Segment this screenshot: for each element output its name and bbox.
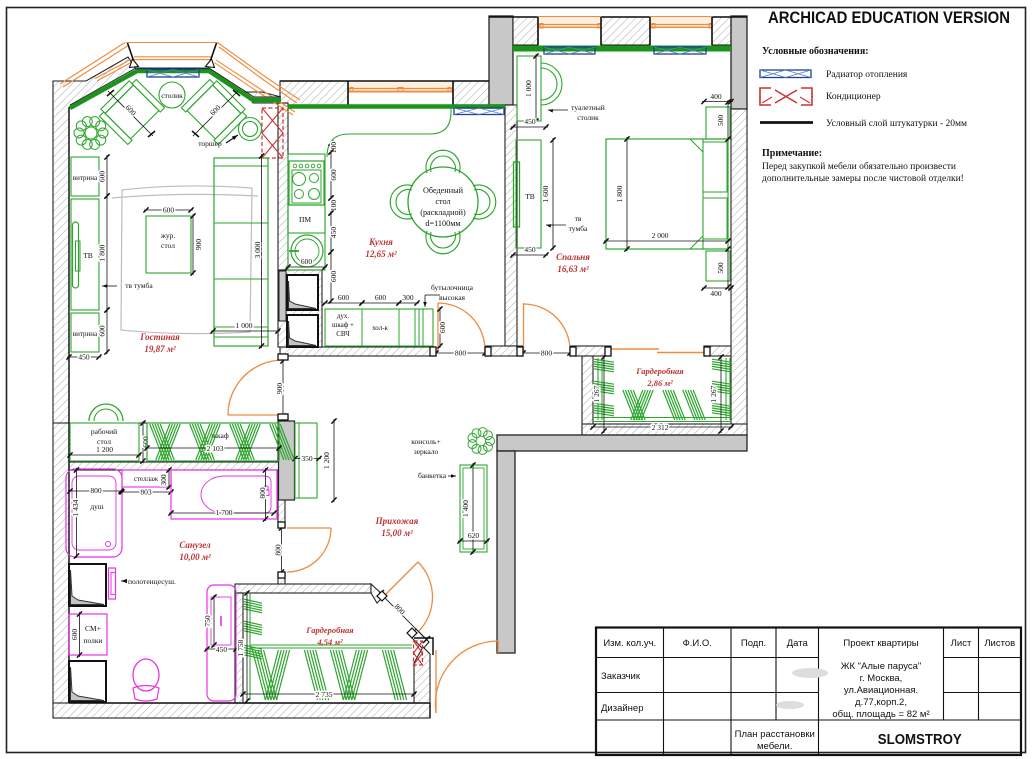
svg-text:450: 450 bbox=[78, 353, 90, 362]
svg-text:Дизайнер: Дизайнер bbox=[601, 703, 644, 714]
svg-text:Ф.И.О.: Ф.И.О. bbox=[683, 638, 712, 649]
svg-text:г. Москва,: г. Москва, bbox=[860, 673, 903, 684]
svg-text:общ. площадь = 82 м²: общ. площадь = 82 м² bbox=[832, 709, 929, 720]
svg-text:душ: душ bbox=[90, 502, 104, 511]
svg-text:(раскладной): (раскладной) bbox=[420, 208, 466, 217]
svg-text:100: 100 bbox=[329, 142, 338, 154]
svg-text:600: 600 bbox=[301, 257, 313, 266]
svg-text:16,63 м²: 16,63 м² bbox=[557, 264, 589, 274]
svg-text:хол-к: хол-к bbox=[372, 324, 388, 332]
svg-text:ПМ: ПМ bbox=[299, 215, 311, 224]
svg-text:900: 900 bbox=[194, 239, 203, 251]
svg-text:стеллаж: стеллаж bbox=[134, 475, 158, 483]
svg-text:Подп.: Подп. bbox=[741, 638, 766, 649]
svg-text:витрина: витрина bbox=[73, 330, 98, 338]
svg-text:Лист: Лист bbox=[951, 638, 972, 649]
svg-text:шкаф +: шкаф + bbox=[332, 321, 354, 329]
svg-text:ул.Авиационная.: ул.Авиационная. bbox=[844, 685, 918, 696]
svg-text:д.77,корп.2,: д.77,корп.2, bbox=[855, 697, 907, 708]
svg-text:620: 620 bbox=[468, 531, 480, 540]
svg-text:15,00 м²: 15,00 м² bbox=[381, 528, 413, 538]
svg-text:мебели.: мебели. bbox=[757, 741, 793, 752]
svg-text:Гардеробная: Гардеробная bbox=[635, 366, 684, 376]
svg-text:400: 400 bbox=[710, 289, 722, 298]
svg-text:750: 750 bbox=[203, 615, 212, 627]
svg-text:803: 803 bbox=[140, 488, 152, 497]
svg-text:400: 400 bbox=[710, 92, 722, 101]
svg-text:1 267: 1 267 bbox=[592, 385, 601, 402]
svg-text:Кухня: Кухня bbox=[368, 237, 393, 247]
svg-text:Радиатор отопления: Радиатор отопления bbox=[826, 70, 908, 80]
svg-text:Обеденный: Обеденный bbox=[423, 186, 464, 195]
svg-text:План расстановки: План расстановки bbox=[735, 729, 815, 740]
svg-text:Дата: Дата bbox=[787, 638, 809, 649]
svg-text:бутылочница: бутылочница bbox=[431, 283, 474, 292]
svg-text:тумба: тумба bbox=[569, 224, 588, 233]
svg-text:Проект квартиры: Проект квартиры bbox=[843, 638, 918, 649]
svg-text:СМ+: СМ+ bbox=[85, 624, 101, 633]
svg-text:600: 600 bbox=[438, 322, 447, 334]
svg-text:600: 600 bbox=[329, 271, 338, 283]
svg-text:d=1100мм: d=1100мм bbox=[425, 219, 460, 228]
svg-text:300: 300 bbox=[159, 474, 168, 486]
svg-text:1 758: 1 758 bbox=[236, 639, 245, 656]
svg-text:торшер: торшер bbox=[198, 139, 222, 148]
svg-text:800: 800 bbox=[258, 487, 267, 499]
svg-text:800: 800 bbox=[455, 349, 467, 358]
svg-text:Перед закупкой мебели обязател: Перед закупкой мебели обязательно произв… bbox=[762, 161, 956, 172]
svg-text:900: 900 bbox=[275, 383, 284, 395]
svg-text:600: 600 bbox=[97, 171, 106, 183]
svg-text:высокая: высокая bbox=[439, 293, 466, 302]
svg-text:4,54 м²: 4,54 м² bbox=[316, 637, 343, 647]
svg-text:SLOMSTROY: SLOMSTROY bbox=[878, 732, 962, 748]
svg-text:Условные обозначения:: Условные обозначения: bbox=[762, 46, 869, 57]
svg-text:450: 450 bbox=[524, 117, 536, 126]
svg-text:Кондиционер: Кондиционер bbox=[826, 92, 881, 102]
svg-text:стол: стол bbox=[161, 241, 175, 250]
svg-text:450: 450 bbox=[524, 245, 536, 254]
svg-text:Изм. кол.уч.: Изм. кол.уч. bbox=[603, 638, 656, 649]
svg-text:2 735: 2 735 bbox=[316, 690, 333, 699]
svg-text:1 700: 1 700 bbox=[216, 508, 233, 517]
svg-text:600: 600 bbox=[375, 293, 387, 302]
svg-text:2 312: 2 312 bbox=[652, 423, 669, 432]
svg-text:Спальня: Спальня bbox=[556, 252, 590, 262]
svg-text:500: 500 bbox=[716, 115, 725, 127]
svg-text:800: 800 bbox=[541, 349, 553, 358]
svg-text:Прихожая: Прихожая bbox=[375, 516, 419, 526]
svg-text:1 400: 1 400 bbox=[461, 500, 470, 517]
svg-text:1 200: 1 200 bbox=[96, 445, 113, 454]
svg-text:600: 600 bbox=[163, 206, 175, 215]
svg-text:100: 100 bbox=[329, 200, 338, 212]
svg-text:консоль+: консоль+ bbox=[411, 437, 440, 446]
svg-text:1 800: 1 800 bbox=[615, 185, 624, 202]
svg-text:1 000: 1 000 bbox=[524, 80, 533, 97]
svg-text:1 267: 1 267 bbox=[709, 385, 718, 402]
svg-text:10,00 м²: 10,00 м² bbox=[179, 552, 211, 562]
svg-text:столик: столик bbox=[161, 91, 183, 100]
svg-text:500: 500 bbox=[716, 262, 725, 274]
svg-text:банкетка: банкетка bbox=[418, 471, 447, 480]
svg-text:ARCHICAD EDUCATION VERSION: ARCHICAD EDUCATION VERSION bbox=[768, 9, 1010, 27]
svg-text:1 800: 1 800 bbox=[97, 244, 106, 261]
svg-text:ТВ: ТВ bbox=[83, 251, 93, 260]
svg-text:1 600: 1 600 bbox=[541, 185, 550, 202]
svg-text:2,86 м²: 2,86 м² bbox=[646, 378, 673, 388]
svg-text:ЖК "Алые паруса": ЖК "Алые паруса" bbox=[841, 661, 922, 672]
svg-text:Примечание:: Примечание: bbox=[762, 148, 822, 159]
svg-text:19,87 м²: 19,87 м² bbox=[144, 344, 176, 354]
svg-text:1 200: 1 200 bbox=[322, 452, 331, 469]
svg-text:СВЧ: СВЧ bbox=[336, 330, 350, 338]
svg-text:тв: тв bbox=[575, 214, 582, 223]
svg-text:600: 600 bbox=[329, 169, 338, 181]
svg-text:800: 800 bbox=[274, 544, 283, 556]
svg-text:Санузел: Санузел bbox=[179, 540, 211, 550]
svg-text:столик: столик bbox=[577, 113, 599, 122]
svg-text:600: 600 bbox=[97, 325, 106, 337]
svg-text:полотенцесуш.: полотенцесуш. bbox=[128, 577, 176, 586]
svg-text:300: 300 bbox=[402, 293, 414, 302]
svg-text:зеркало: зеркало bbox=[414, 447, 439, 456]
svg-text:ТВ: ТВ bbox=[525, 192, 535, 201]
svg-text:450: 450 bbox=[216, 645, 228, 654]
svg-text:Условный слой штукатурки - 20м: Условный слой штукатурки - 20мм bbox=[826, 118, 967, 129]
svg-text:600: 600 bbox=[338, 293, 350, 302]
svg-text:рабочий: рабочий bbox=[91, 427, 117, 436]
svg-text:Гостиная: Гостиная bbox=[139, 332, 180, 342]
svg-text:полки: полки bbox=[83, 636, 102, 645]
svg-text:600: 600 bbox=[70, 629, 79, 641]
svg-text:стол: стол bbox=[435, 197, 450, 206]
svg-text:дополнительные замеры после чи: дополнительные замеры после чистовой отд… bbox=[762, 173, 964, 184]
svg-text:1 000: 1 000 bbox=[236, 321, 253, 330]
svg-text:Гардеробная: Гардеробная bbox=[305, 625, 354, 635]
svg-text:туалетный: туалетный bbox=[571, 103, 605, 112]
svg-text:Листов: Листов bbox=[984, 638, 1015, 649]
svg-text:800: 800 bbox=[90, 486, 102, 495]
svg-text:2 103: 2 103 bbox=[207, 444, 224, 453]
svg-text:3 000: 3 000 bbox=[253, 241, 262, 258]
svg-text:жур.: жур. bbox=[160, 231, 176, 240]
svg-text:450: 450 bbox=[329, 227, 338, 239]
svg-text:витрина: витрина bbox=[73, 174, 98, 182]
svg-text:12,65 м²: 12,65 м² bbox=[365, 249, 397, 259]
svg-text:1 434: 1 434 bbox=[71, 499, 80, 516]
svg-text:дух.: дух. bbox=[337, 312, 350, 320]
svg-text:350: 350 bbox=[301, 454, 313, 463]
svg-text:тв тумба: тв тумба bbox=[125, 281, 153, 290]
svg-text:2 000: 2 000 bbox=[652, 231, 669, 240]
svg-text:Заказчик: Заказчик bbox=[601, 671, 641, 682]
